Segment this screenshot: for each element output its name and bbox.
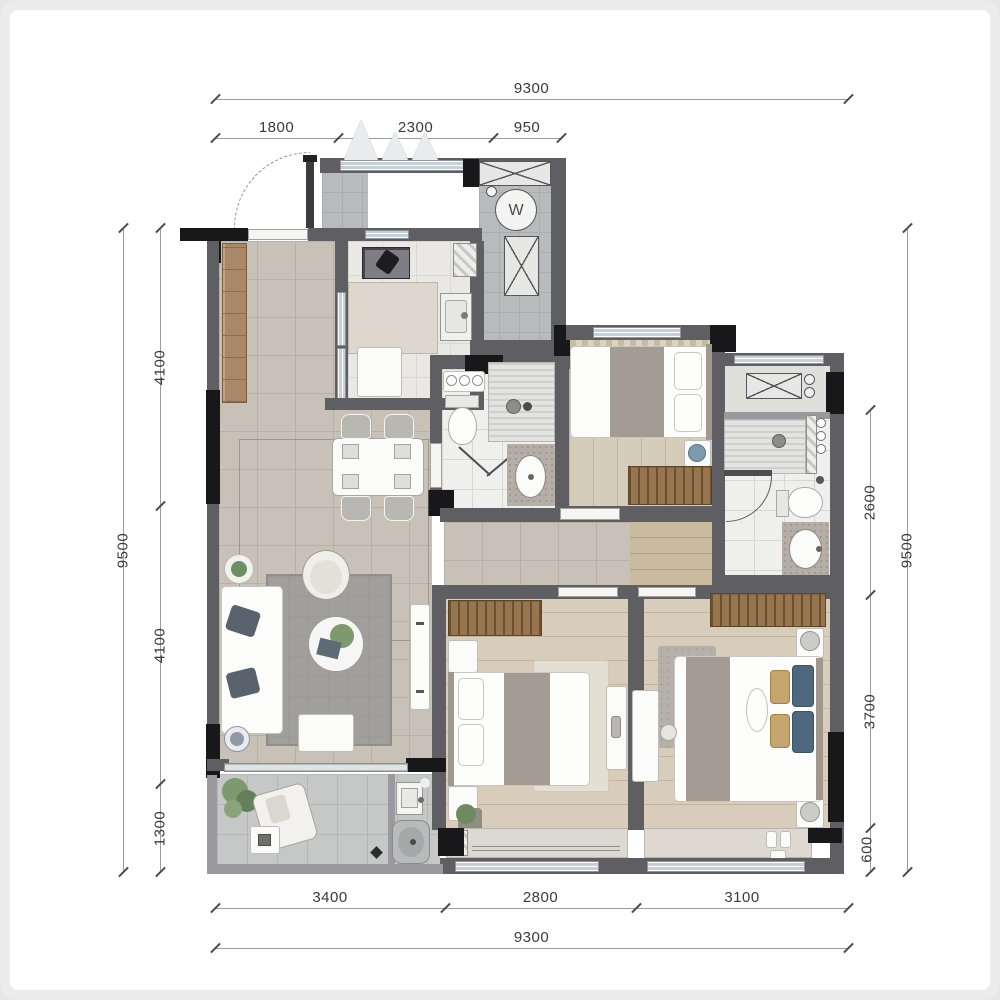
- shoe-cabinet: [222, 243, 247, 403]
- dim-line-bottom-total: [215, 948, 848, 949]
- bed1-headboard: [706, 344, 712, 440]
- tv-mark: [416, 690, 424, 693]
- dim-line-bottom-segments: [215, 908, 848, 909]
- overhead-cabinet: [479, 161, 551, 186]
- dim-top-seg-1: 1800: [215, 119, 338, 136]
- dim-top-seg-3: 950: [493, 119, 561, 136]
- entry-threshold: [248, 229, 308, 240]
- dining-chair: [341, 414, 371, 439]
- bay-slider-track: [472, 846, 620, 851]
- bedroom2-south-window: [455, 861, 599, 872]
- bedroom2-door-opening: [558, 587, 618, 597]
- flue-shaft: [453, 243, 477, 277]
- balcony-rail-west: [207, 775, 217, 870]
- burner: [804, 387, 815, 398]
- dim-bottom-total: 9300: [215, 929, 848, 946]
- place-setting: [394, 474, 411, 489]
- washer-valve: [486, 186, 497, 197]
- master-pillow-navy: [792, 711, 814, 753]
- dim-left-seg-3: 1300: [152, 801, 169, 857]
- bedroom1-window: [593, 327, 681, 338]
- bed2-runner: [504, 673, 550, 785]
- dim-line-top-total: [215, 99, 848, 100]
- casement-symbol: [344, 120, 378, 160]
- balcony-rail-south: [207, 864, 443, 874]
- master-bed-runner: [686, 657, 730, 801]
- bed2-pillow: [458, 724, 484, 766]
- toilet-bowl: [448, 407, 477, 445]
- dim-right-seg-1: 2600: [862, 475, 879, 531]
- bay-slippers: [780, 831, 791, 848]
- shelf-jar: [459, 375, 470, 386]
- dim-line-left-segments: [160, 228, 161, 872]
- casement-symbol: [412, 132, 438, 160]
- balcony-sliding-door: [224, 763, 408, 772]
- shelf-jar: [816, 444, 826, 454]
- dim-bottom-seg-2: 2800: [445, 889, 636, 906]
- ottoman: [298, 714, 354, 752]
- place-setting: [394, 444, 411, 459]
- drying-rack: [504, 236, 539, 296]
- utility-counter: [746, 373, 802, 399]
- column: [180, 228, 248, 241]
- dim-left-seg-1: 4100: [152, 340, 169, 396]
- master-door-opening: [638, 587, 696, 597]
- dim-right-total: 9500: [899, 523, 916, 579]
- floor-plant-leaves: [231, 561, 247, 577]
- bed2-pillow: [458, 678, 484, 720]
- kitchen-island: [348, 282, 438, 354]
- north-window: [340, 160, 466, 171]
- column: [463, 159, 479, 187]
- bay-slippers: [766, 831, 777, 848]
- dresser-stool: [660, 724, 677, 741]
- tv-console: [410, 604, 430, 710]
- master-pillow-tan: [770, 714, 790, 748]
- bath1-south-wall: [440, 508, 568, 522]
- kitchen-glass-door: [337, 348, 346, 400]
- dim-right-seg-3: 600: [859, 825, 876, 875]
- master-headboard: [816, 658, 823, 800]
- dining-chair: [384, 414, 414, 439]
- master-cushion: [746, 688, 768, 732]
- faucet: [528, 474, 534, 480]
- dim-bottom-seg-1: 3400: [215, 889, 445, 906]
- entry-wall: [308, 228, 344, 241]
- nightstand-lamp: [800, 802, 820, 822]
- armchair-seat: [310, 560, 342, 594]
- bed2-headboard: [448, 672, 454, 786]
- dim-top-total: 9300: [215, 80, 848, 97]
- column: [206, 390, 220, 504]
- burner: [804, 374, 815, 385]
- mop-sink-basin: [401, 788, 418, 808]
- shower-area-2: [724, 419, 806, 474]
- north-balcony-floor: [322, 172, 368, 228]
- place-setting: [342, 474, 359, 489]
- door-hinge: [303, 155, 317, 162]
- master-pillow-navy: [792, 665, 814, 707]
- column: [808, 828, 842, 843]
- nightstand-lamp: [800, 631, 820, 651]
- master-pillow-tan: [770, 670, 790, 704]
- dim-left-total: 9500: [115, 523, 132, 579]
- bed1-pillow: [674, 352, 702, 390]
- dim-left-seg-2: 4100: [152, 618, 169, 674]
- shelf-jar: [446, 375, 457, 386]
- faucet: [418, 797, 424, 803]
- shower-head: [506, 399, 521, 414]
- balcony-cup: [258, 834, 271, 846]
- balcony-plant: [224, 800, 242, 818]
- desk-item: [611, 716, 621, 738]
- column: [438, 828, 464, 856]
- faucet: [816, 546, 822, 552]
- bath2-door-leaf: [724, 470, 772, 476]
- master-south-window: [647, 861, 805, 872]
- casement-symbol: [382, 132, 408, 160]
- tv-mark: [416, 622, 424, 625]
- bed1-pillow: [674, 394, 702, 432]
- kitchen-glass-door: [337, 292, 346, 346]
- sprayer: [816, 476, 824, 484]
- shower-head: [772, 434, 786, 448]
- entry-door-leaf: [306, 160, 314, 228]
- shelf-jar: [816, 431, 826, 441]
- shelf-jar: [816, 418, 826, 428]
- column: [826, 372, 844, 414]
- basin-dot: [410, 839, 416, 845]
- corridor-floor: [444, 522, 630, 586]
- kitchen-table: [357, 347, 402, 397]
- bedroom2-wardrobe: [448, 600, 542, 636]
- dim-bottom-seg-3: 3100: [636, 889, 848, 906]
- washing-machine-symbol: W: [495, 189, 537, 231]
- shower-valve: [523, 402, 532, 411]
- dining-chair: [384, 496, 414, 521]
- floor-plan-canvas: 9300 1800 2300 950 3400 2800 3100 9300 9…: [0, 0, 1000, 1000]
- bedroom2-bay-sill: [446, 828, 628, 858]
- side-table-inner: [230, 732, 244, 746]
- bath1-door-opening: [430, 443, 442, 488]
- bedroom2-west-wall: [432, 585, 446, 830]
- toilet2-bowl: [788, 487, 823, 518]
- drain-cap: [420, 778, 430, 788]
- master-wardrobe: [710, 593, 826, 627]
- shower-area: [488, 362, 555, 442]
- bed1-runner: [610, 347, 664, 437]
- kitchen-pass-window: [365, 230, 409, 239]
- master-dresser: [632, 690, 659, 782]
- dim-right-seg-2: 3700: [862, 684, 879, 740]
- bedroom2-nightstand: [448, 640, 478, 673]
- bedroom1-wardrobe: [628, 466, 712, 505]
- column: [710, 325, 736, 352]
- dining-chair: [341, 496, 371, 521]
- west-wall: [207, 241, 219, 775]
- washer-label: W: [508, 202, 523, 219]
- shelf-jar: [472, 375, 483, 386]
- bedroom1-door-opening: [560, 508, 620, 520]
- plant: [456, 804, 476, 824]
- column: [828, 732, 844, 822]
- place-setting: [342, 444, 359, 459]
- hallway-floor: [630, 522, 712, 586]
- utility-window: [734, 355, 824, 364]
- faucet: [461, 312, 468, 319]
- column: [406, 758, 446, 772]
- bedside-lamp: [688, 444, 706, 462]
- laundry-south-wall: [470, 340, 566, 355]
